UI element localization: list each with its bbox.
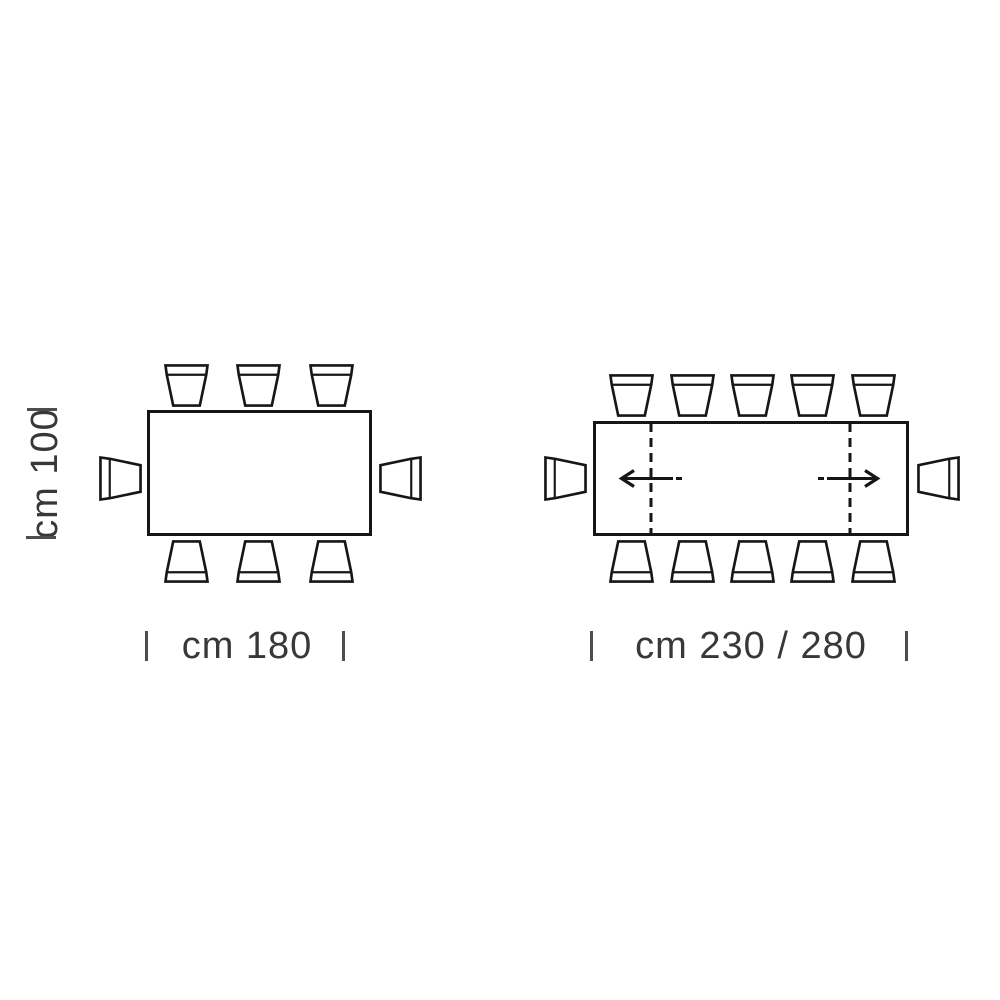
chair: [670, 374, 715, 417]
chair: [790, 374, 835, 417]
chair: [851, 374, 896, 417]
extension-arrow-right-icon: [818, 471, 878, 487]
chair: [609, 540, 654, 583]
chair: [730, 540, 775, 583]
width-dimension-tick-right: [905, 631, 908, 661]
extension-overlay: [593, 421, 909, 536]
chair: [164, 364, 209, 407]
depth-dimension-tick-bottom: [26, 536, 56, 539]
chair: [236, 540, 281, 583]
plan-diagram-canvas: cm 100 cm 180: [0, 0, 1000, 1000]
width-dimension-label: cm 180: [147, 625, 347, 668]
chair: [917, 456, 960, 501]
chair: [379, 456, 422, 501]
depth-dimension-label-wrap: cm 100: [6, 411, 84, 535]
chair: [851, 540, 896, 583]
chair: [236, 364, 281, 407]
depth-dimension-label: cm 100: [24, 408, 67, 539]
chair: [309, 540, 354, 583]
chair: [544, 456, 587, 501]
chair: [609, 374, 654, 417]
fixed-table: [147, 410, 372, 536]
chair: [309, 364, 354, 407]
chair: [790, 540, 835, 583]
chair: [99, 456, 142, 501]
chair: [670, 540, 715, 583]
width-dimension-tick-right: [342, 631, 345, 661]
extendable-width-dimension-label: cm 230 / 280: [593, 625, 909, 668]
chair: [730, 374, 775, 417]
chair: [164, 540, 209, 583]
